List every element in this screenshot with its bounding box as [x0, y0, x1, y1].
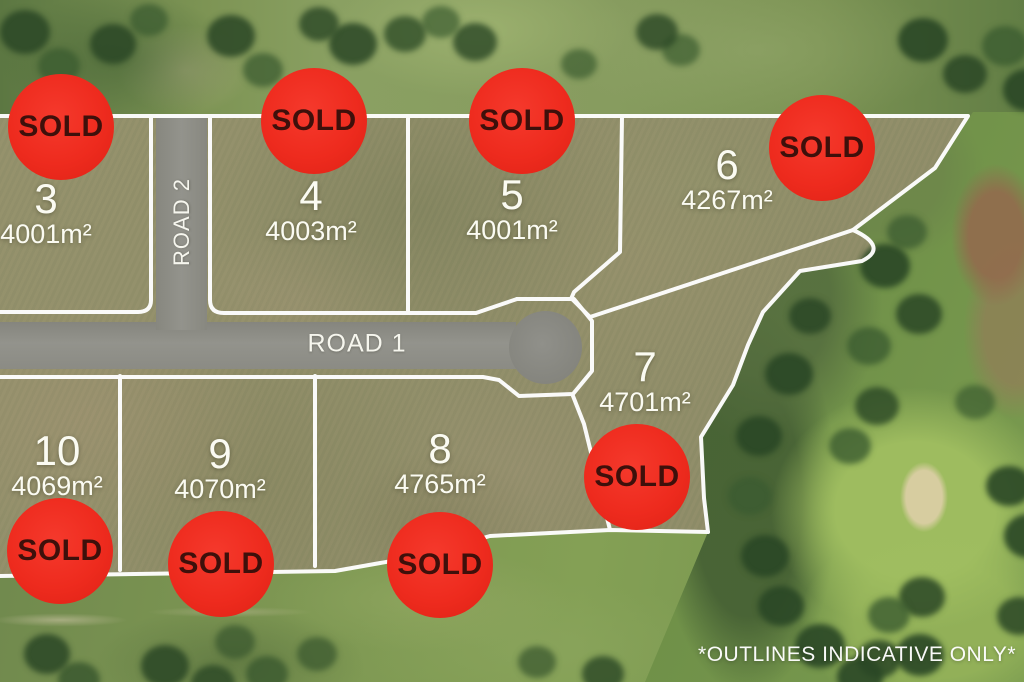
sold-badge-label: SOLD [18, 110, 103, 144]
lot5-lot6-divider [571, 117, 622, 299]
sold-badge-lot-5: SOLD [469, 68, 575, 174]
lot-area: 4070m² [174, 474, 266, 504]
lot-area: 4701m² [599, 387, 691, 417]
sold-badge-lot-6: SOLD [769, 95, 875, 201]
sold-badge-lot-7: SOLD [584, 424, 690, 530]
sold-badge-label: SOLD [271, 104, 356, 138]
aerial-subdivision-map: ROAD 1 ROAD 2 3 4001m² 4 4003m² 5 4001m²… [0, 0, 1024, 682]
sold-badge-lot-4: SOLD [261, 68, 367, 174]
lot-area: 4765m² [394, 469, 486, 499]
lot6-lot7-boundary [573, 230, 853, 317]
sold-badge-lot-10: SOLD [7, 498, 113, 604]
sold-badge-label: SOLD [479, 104, 564, 138]
sold-badge-label: SOLD [397, 548, 482, 582]
lot-4-label: 4 4003m² [265, 176, 357, 246]
east-treeline-boundary [701, 230, 874, 532]
lot-number: 8 [394, 429, 486, 469]
lot-8-label: 8 4765m² [394, 429, 486, 499]
lot-area: 4003m² [265, 216, 357, 246]
sold-badge-label: SOLD [17, 534, 102, 568]
sold-badge-lot-8: SOLD [387, 512, 493, 618]
lot-9-label: 9 4070m² [174, 434, 266, 504]
disclaimer-text: *OUTLINES INDICATIVE ONLY* [698, 643, 1016, 667]
road-1-label: ROAD 1 [307, 330, 406, 359]
lot-3-label: 3 4001m² [0, 179, 92, 249]
lot-number: 9 [174, 434, 266, 474]
lot-area: 4001m² [466, 215, 558, 245]
sold-badge-label: SOLD [178, 547, 263, 581]
lot-7-label: 7 4701m² [599, 347, 691, 417]
lot-number: 4 [265, 176, 357, 216]
lot-number: 5 [466, 175, 558, 215]
sold-badge-lot-3: SOLD [8, 74, 114, 180]
lot-5-label: 5 4001m² [466, 175, 558, 245]
road-2-label: ROAD 2 [169, 178, 195, 266]
sold-badge-label: SOLD [779, 131, 864, 165]
lot-number: 7 [599, 347, 691, 387]
lot-10-label: 10 4069m² [11, 431, 103, 501]
sold-badge-lot-9: SOLD [168, 511, 274, 617]
lot-6-label: 6 4267m² [681, 145, 773, 215]
lot-area: 4267m² [681, 185, 773, 215]
lot-area: 4069m² [11, 471, 103, 501]
lot-number: 3 [0, 179, 92, 219]
sold-badge-label: SOLD [594, 460, 679, 494]
lot-number: 10 [11, 431, 103, 471]
lot-area: 4001m² [0, 219, 92, 249]
lot-number: 6 [681, 145, 773, 185]
